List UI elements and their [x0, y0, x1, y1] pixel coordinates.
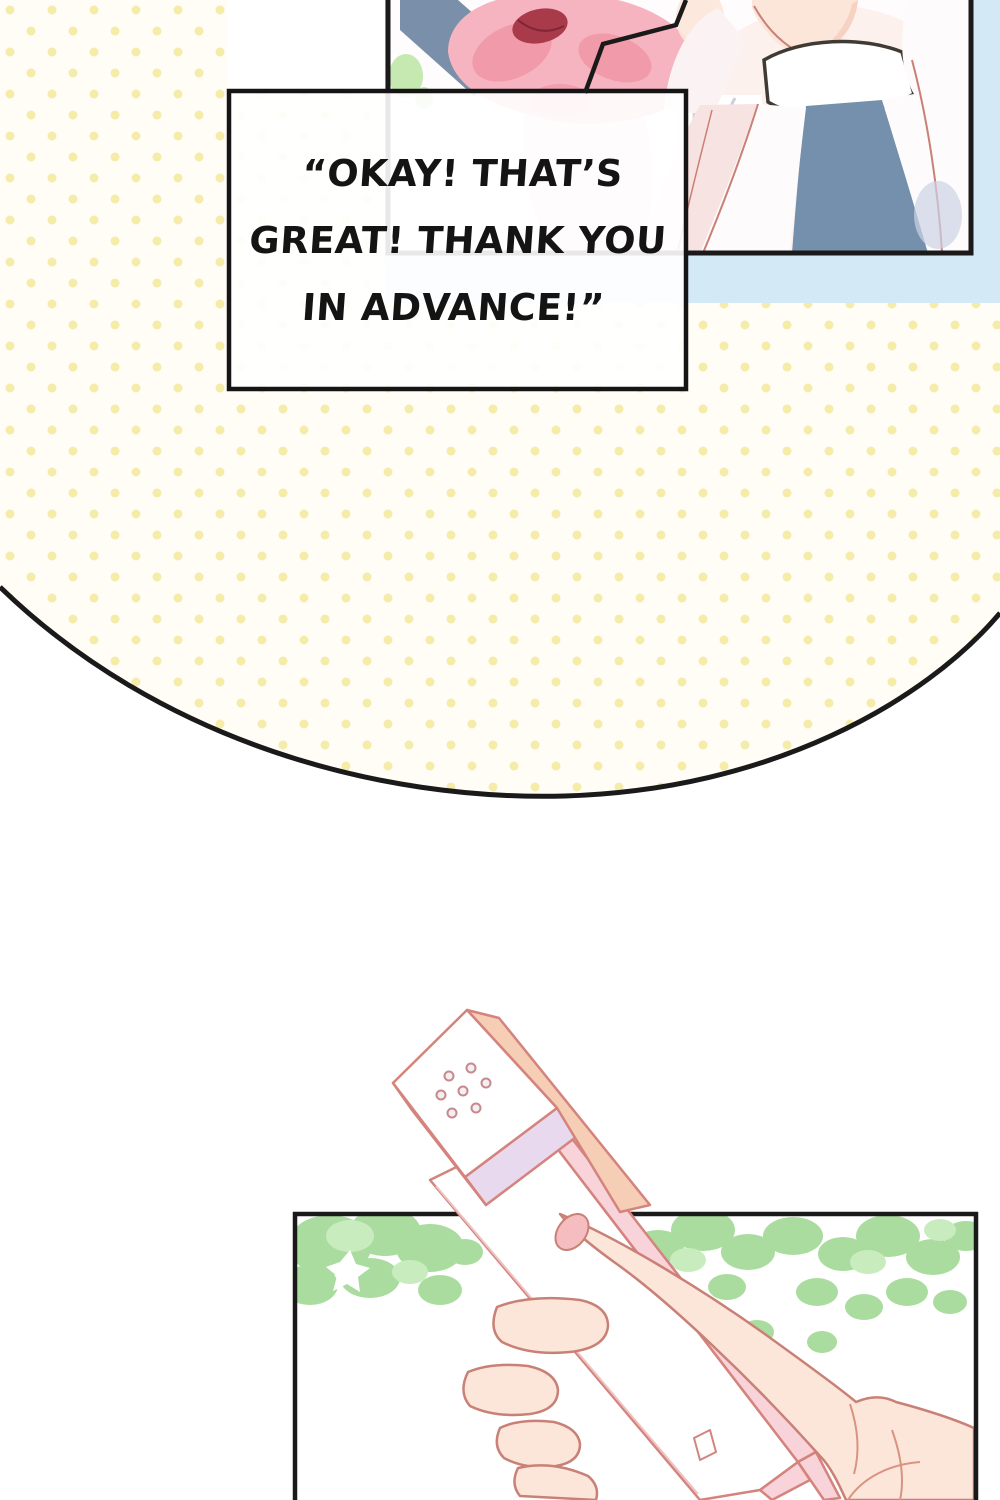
comic-page: “OKAY! THAT’S GREAT! THANK YOU IN ADVANC… — [0, 0, 1000, 1500]
fingertip — [493, 1298, 608, 1353]
fingertip — [463, 1365, 558, 1415]
speech-line: IN ADVANCE!” — [300, 274, 607, 341]
fingertip — [497, 1421, 580, 1467]
speech-bubble-text: “OKAY! THAT’S GREAT! THANK YOU IN ADVANC… — [220, 94, 696, 386]
speech-line: GREAT! THANK YOU — [247, 207, 669, 274]
bubble-tail-whitespace — [227, 0, 392, 92]
speech-line: “OKAY! THAT’S — [300, 140, 625, 207]
